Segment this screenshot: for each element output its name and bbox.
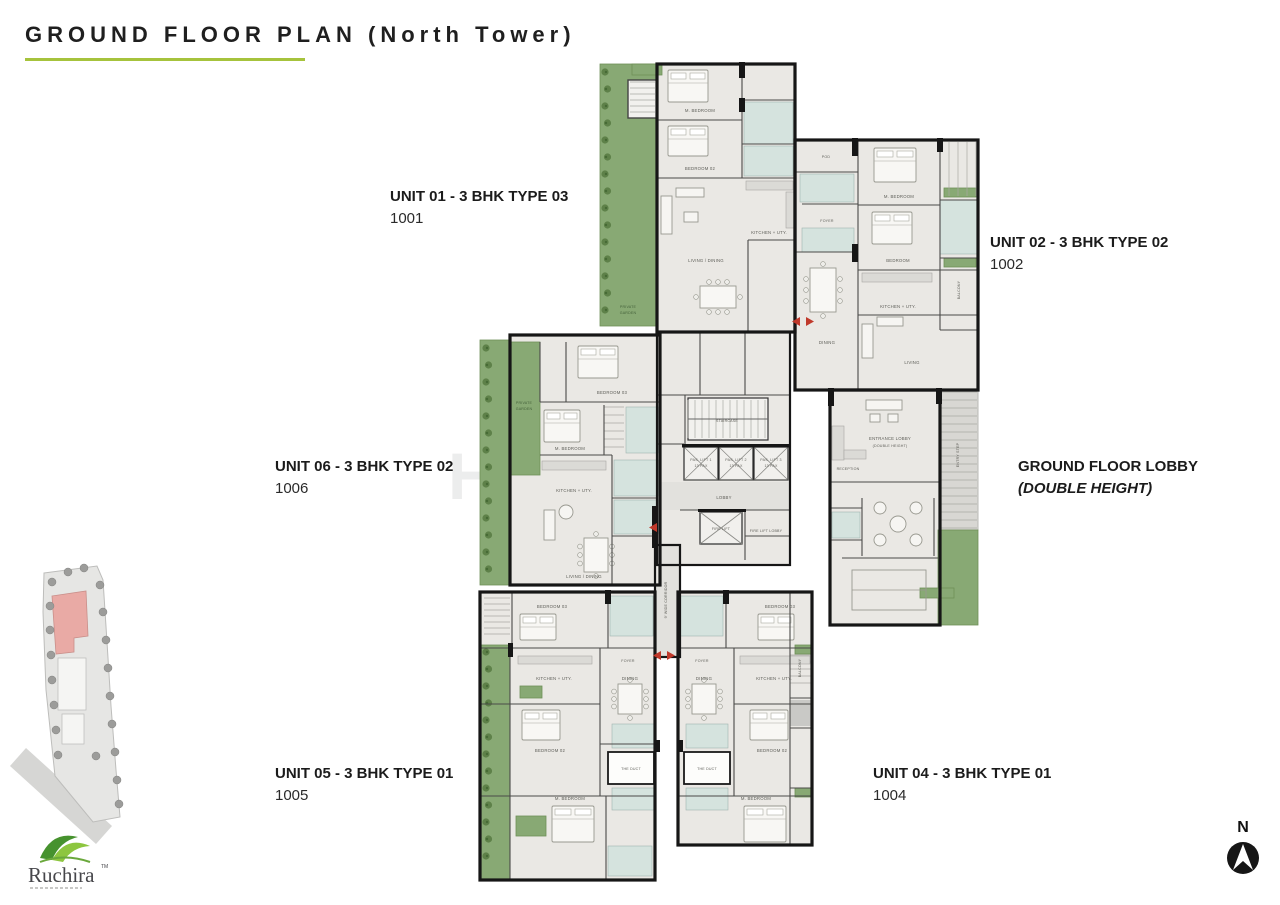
svg-text:PRIVATE: PRIVATE [620, 305, 637, 309]
north-label: N [1237, 819, 1249, 836]
svg-text:GARDEN: GARDEN [620, 311, 637, 315]
svg-text:13 PAX: 13 PAX [694, 464, 708, 468]
site-building-3 [62, 714, 84, 744]
svg-text:BEDROOM 03: BEDROOM 03 [765, 604, 796, 609]
planter-7 [795, 645, 811, 654]
svg-text:DINING: DINING [819, 340, 836, 345]
svg-text:BEDROOM 02: BEDROOM 02 [757, 748, 788, 753]
svg-text:KITCHEN + UTY.: KITCHEN + UTY. [556, 488, 592, 493]
svg-text:ENTRY STEP: ENTRY STEP [956, 442, 960, 467]
svg-text:DINING: DINING [696, 676, 713, 681]
svg-text:BALCONY: BALCONY [798, 658, 802, 677]
svg-text:BEDROOM 02: BEDROOM 02 [685, 166, 716, 171]
site-plan-thumbnail [10, 564, 123, 844]
floor-plan: PRIVATE GARDEN M. BEDROOM BEDROOM 02 LIV… [480, 62, 978, 880]
svg-text:KITCHEN + UTY.: KITCHEN + UTY. [751, 230, 787, 235]
planter-6 [516, 816, 546, 836]
svg-text:GARDEN: GARDEN [516, 407, 533, 411]
svg-text:M. BEDROOM: M. BEDROOM [555, 796, 585, 801]
svg-text:RECEPTION: RECEPTION [837, 467, 860, 471]
svg-text:PAS. LIFT 3: PAS. LIFT 3 [760, 458, 781, 462]
logo-tm: TM [101, 864, 108, 870]
svg-text:THE DUCT: THE DUCT [621, 767, 641, 771]
svg-text:LIVING / DINING: LIVING / DINING [566, 574, 602, 579]
planter-4 [920, 588, 954, 598]
svg-text:13 PAX: 13 PAX [729, 464, 743, 468]
svg-text:BEDROOM 03: BEDROOM 03 [537, 604, 568, 609]
svg-text:13 PAX: 13 PAX [764, 464, 778, 468]
svg-text:M. BEDROOM: M. BEDROOM [741, 796, 771, 801]
svg-text:BALCONY: BALCONY [957, 280, 961, 299]
svg-text:THE DUCT: THE DUCT [697, 767, 717, 771]
svg-text:BEDROOM: BEDROOM [886, 258, 910, 263]
unit05-garden-strip [480, 645, 510, 880]
page: GROUND FLOOR PLAN (North Tower) Housing … [0, 0, 1280, 905]
svg-text:DINING: DINING [622, 676, 639, 681]
svg-text:PRIVATE: PRIVATE [516, 401, 533, 405]
svg-text:KITCHEN + UTY.: KITCHEN + UTY. [880, 304, 916, 309]
svg-text:FOYER: FOYER [820, 219, 834, 223]
north-arrow: N [1227, 819, 1259, 874]
svg-text:M. BEDROOM: M. BEDROOM [685, 108, 715, 113]
svg-text:PAS. LIFT 1: PAS. LIFT 1 [690, 458, 711, 462]
svg-text:BEDROOM 03: BEDROOM 03 [597, 390, 628, 395]
svg-text:BEDROOM 02: BEDROOM 02 [535, 748, 566, 753]
svg-text:LOBBY: LOBBY [716, 495, 731, 500]
svg-text:POD: POD [822, 155, 831, 159]
unit06-round-table [559, 505, 573, 519]
unit06-garden-strip [480, 340, 510, 585]
svg-text:FIRE LIFT: FIRE LIFT [712, 527, 731, 531]
svg-text:LIVING / DINING: LIVING / DINING [688, 258, 724, 263]
lobby-garden [938, 530, 978, 625]
svg-text:9' WIDE CORRIDOR: 9' WIDE CORRIDOR [664, 581, 668, 618]
planter-5 [520, 686, 542, 698]
svg-text:(DOUBLE HEIGHT): (DOUBLE HEIGHT) [873, 444, 908, 448]
svg-text:M. BEDROOM: M. BEDROOM [884, 194, 914, 199]
svg-text:KITCHEN + UTY.: KITCHEN + UTY. [756, 676, 792, 681]
svg-text:FOYER: FOYER [621, 659, 635, 663]
svg-text:LIVING: LIVING [904, 360, 920, 365]
logo-brand: Ruchira [28, 863, 95, 887]
plan-canvas: PRIVATE GARDEN M. BEDROOM BEDROOM 02 LIV… [0, 0, 1280, 905]
planter-3 [944, 258, 976, 267]
svg-text:ENTRANCE LOBBY: ENTRANCE LOBBY [869, 436, 911, 441]
svg-text:STAIRCASE: STAIRCASE [716, 419, 738, 423]
site-building-2 [58, 658, 86, 710]
svg-text:FOYER: FOYER [695, 659, 709, 663]
svg-text:M. BEDROOM: M. BEDROOM [555, 446, 585, 451]
svg-text:FIRE LIFT LOBBY: FIRE LIFT LOBBY [750, 529, 783, 533]
svg-text:PAS. LIFT 2: PAS. LIFT 2 [725, 458, 746, 462]
svg-text:KITCHEN + UTY.: KITCHEN + UTY. [536, 676, 572, 681]
